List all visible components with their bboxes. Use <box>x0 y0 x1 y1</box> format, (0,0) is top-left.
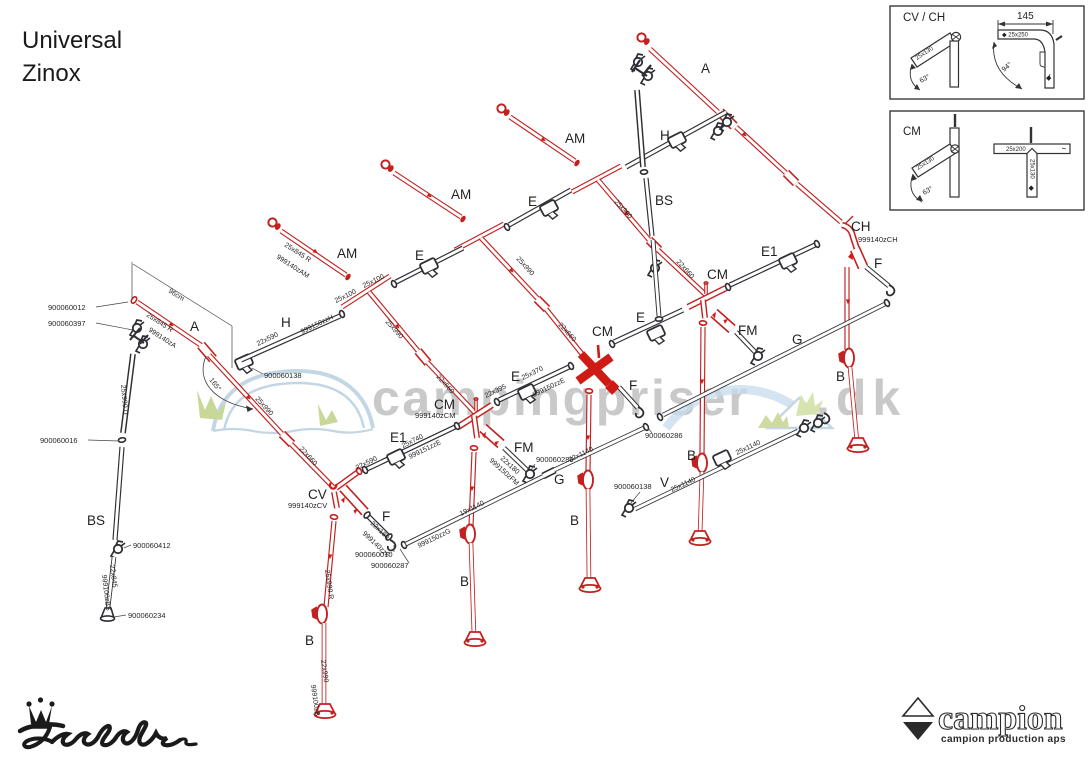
svg-text:999100zB: 999100zB <box>309 684 320 717</box>
svg-text:CM: CM <box>434 397 455 412</box>
svg-text:G: G <box>554 472 565 487</box>
svg-text:900060016: 900060016 <box>40 436 78 445</box>
svg-text:◆: ◆ <box>1029 185 1035 192</box>
svg-text:E1: E1 <box>761 244 778 259</box>
svg-text:AM: AM <box>451 187 471 202</box>
svg-text:25x990 U: 25x990 U <box>119 385 129 415</box>
svg-text:CV: CV <box>308 487 327 502</box>
svg-text:B: B <box>305 633 314 648</box>
svg-text:B: B <box>570 513 579 528</box>
svg-text:BS: BS <box>87 513 105 528</box>
svg-text:E: E <box>511 369 520 384</box>
svg-text:Zinox: Zinox <box>22 60 81 87</box>
svg-text:CM: CM <box>707 267 728 282</box>
svg-text:22x990: 22x990 <box>319 659 329 683</box>
svg-text:F: F <box>874 256 882 271</box>
svg-text:Universal: Universal <box>22 27 122 54</box>
svg-text:AM: AM <box>337 246 357 261</box>
svg-text:B: B <box>687 448 696 463</box>
svg-text:◆: ◆ <box>1046 75 1052 82</box>
svg-text:900060012: 900060012 <box>48 303 86 312</box>
svg-text:25x990: 25x990 <box>613 199 634 221</box>
svg-text:campion: campion <box>938 700 1063 737</box>
svg-text:900060138: 900060138 <box>264 371 302 380</box>
svg-text:25x130: 25x130 <box>1029 159 1035 179</box>
svg-text:BS: BS <box>655 193 673 208</box>
svg-text:F: F <box>629 378 637 393</box>
svg-text:F: F <box>382 509 390 524</box>
svg-text:900060287: 900060287 <box>371 561 409 570</box>
svg-text:E: E <box>528 194 537 209</box>
svg-text:A: A <box>190 319 199 334</box>
svg-text:FM: FM <box>514 440 534 455</box>
svg-text:FM: FM <box>738 323 758 338</box>
svg-text:G: G <box>792 332 803 347</box>
svg-text:B: B <box>460 574 469 589</box>
svg-text:◆ 25x250: ◆ 25x250 <box>1002 33 1029 39</box>
svg-text:H: H <box>281 315 291 330</box>
svg-text:999150zzH: 999150zzH <box>300 314 335 336</box>
svg-text:CM: CM <box>592 324 613 339</box>
svg-text:96cm: 96cm <box>167 288 185 303</box>
svg-text:E: E <box>636 310 645 325</box>
svg-text:A: A <box>701 61 710 76</box>
svg-text:145: 145 <box>1017 11 1034 22</box>
svg-text:CH: CH <box>851 219 871 234</box>
svg-text:999140zCH: 999140zCH <box>858 235 898 244</box>
svg-text:900060234: 900060234 <box>128 611 166 620</box>
svg-text:999140zA: 999140zA <box>147 327 178 350</box>
svg-text:E: E <box>415 248 424 263</box>
svg-text:165°: 165° <box>207 376 222 392</box>
svg-text:H: H <box>660 128 670 143</box>
svg-text:999140zCM: 999140zCM <box>415 411 455 420</box>
svg-text:900060412: 900060412 <box>133 541 171 550</box>
svg-text:campion production aps: campion production aps <box>941 734 1066 745</box>
svg-text:22x660: 22x660 <box>557 322 578 344</box>
svg-text:900060397: 900060397 <box>48 319 86 328</box>
svg-text:900060138: 900060138 <box>614 482 652 491</box>
svg-text:B: B <box>836 369 845 384</box>
svg-text:900060286: 900060286 <box>645 431 683 440</box>
svg-text:25x200: 25x200 <box>1006 147 1026 153</box>
svg-text:25x1140: 25x1140 <box>670 476 697 494</box>
svg-text:CM: CM <box>903 126 921 138</box>
svg-text:CV / CH: CV / CH <box>903 12 945 24</box>
svg-text:AM: AM <box>565 131 585 146</box>
svg-text:999140zCV: 999140zCV <box>288 501 327 510</box>
svg-text:V: V <box>660 475 669 490</box>
